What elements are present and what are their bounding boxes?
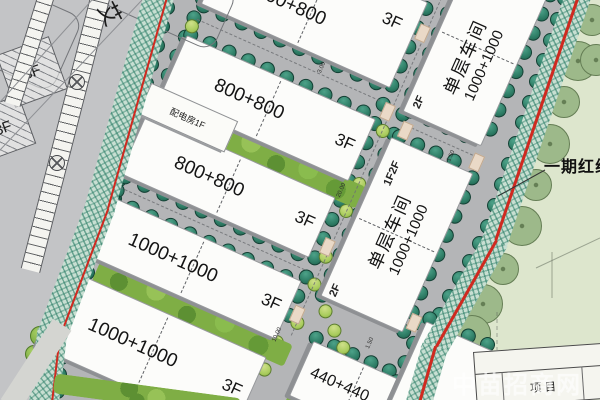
red-boundary-line [416, 346, 437, 400]
dimension-label: 1.50 [365, 337, 375, 350]
building-floors: 3F [258, 289, 284, 315]
tree-icon [325, 321, 343, 339]
tree-icon [316, 302, 334, 320]
building-label: 单层车间 1000+1000 [436, 15, 508, 106]
site-plan: 800+800 3F 800+800 3F 800+800 3F 1000+10… [0, 0, 600, 400]
paving-patch [397, 121, 414, 141]
building-floors: 3F [292, 207, 318, 233]
paving-patch [468, 152, 485, 172]
building-label: 440+440 [298, 361, 380, 400]
phase1-redline-label: 一期红线 [544, 153, 600, 177]
corner-floors: 1F2F [381, 159, 402, 187]
building-label: 单层车间 1000+1000 [361, 189, 433, 280]
corner-floors: 2F [411, 94, 427, 111]
corner-floors: 2F [327, 282, 343, 299]
building-floors: 3F [332, 129, 358, 155]
watermark: 中苗招商网 [452, 365, 582, 400]
parking-tree-symbol [49, 155, 65, 171]
parking-tree-symbol [69, 74, 85, 90]
building-floors: 3F [379, 8, 405, 34]
